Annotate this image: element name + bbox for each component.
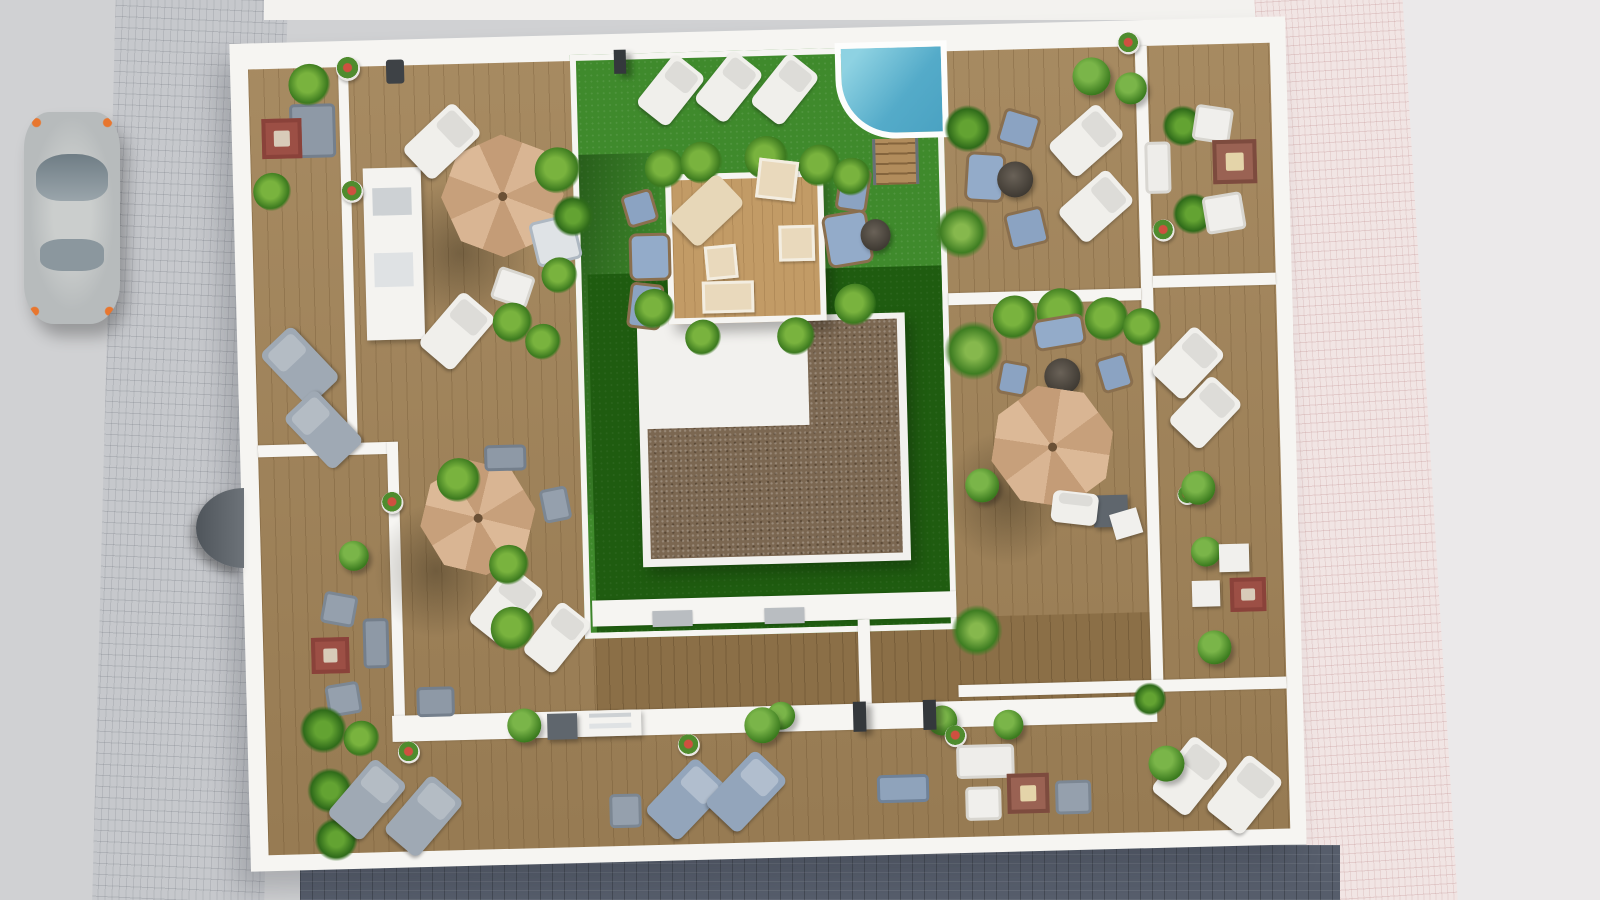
- wicker-armchair: [996, 359, 1032, 398]
- storage-box: [547, 713, 578, 740]
- outdoor-kitchen-counter: [363, 167, 425, 340]
- side-table: [1192, 580, 1221, 607]
- armchair: [965, 786, 1002, 821]
- armchair: [1055, 780, 1092, 815]
- garden-sofa: [484, 444, 527, 471]
- lawn-lamp: [614, 50, 627, 74]
- fire-table: [1212, 139, 1257, 184]
- doormat: [764, 607, 804, 624]
- core-roof-gravel-east: [807, 319, 900, 429]
- armchair: [1191, 104, 1234, 145]
- wicker-sofa: [628, 232, 671, 281]
- terrace-lamp: [853, 702, 867, 732]
- garden-sofa: [877, 774, 930, 803]
- pool-steps: [872, 138, 919, 185]
- rooftop-terrace-building: [229, 16, 1306, 871]
- armchair: [320, 590, 359, 628]
- divider-wall-south-vertical: [858, 619, 872, 703]
- aerial-render-stage: [0, 0, 1600, 900]
- deck-cushion: [702, 280, 755, 313]
- deck-cushion: [704, 244, 739, 281]
- side-table: [1219, 543, 1250, 572]
- armchair: [609, 793, 642, 828]
- deck-cushion: [778, 225, 815, 262]
- rail-counter: [579, 709, 642, 737]
- deck-cushion: [755, 158, 799, 202]
- garden-sofa: [1144, 141, 1171, 194]
- core-roof-gravel-main: [648, 423, 903, 560]
- fire-table: [1230, 577, 1267, 612]
- top-white-roof-strip: [264, 0, 1274, 20]
- terrace-lamp: [923, 700, 937, 730]
- garden-bench: [362, 618, 389, 669]
- sun-lounger: [1050, 489, 1099, 526]
- bbq-grill: [386, 59, 405, 83]
- fire-table: [1007, 773, 1050, 814]
- garden-sofa: [416, 686, 455, 717]
- doormat: [652, 610, 692, 627]
- armchair: [1201, 191, 1247, 235]
- fire-table: [261, 118, 302, 159]
- fire-table: [311, 637, 350, 674]
